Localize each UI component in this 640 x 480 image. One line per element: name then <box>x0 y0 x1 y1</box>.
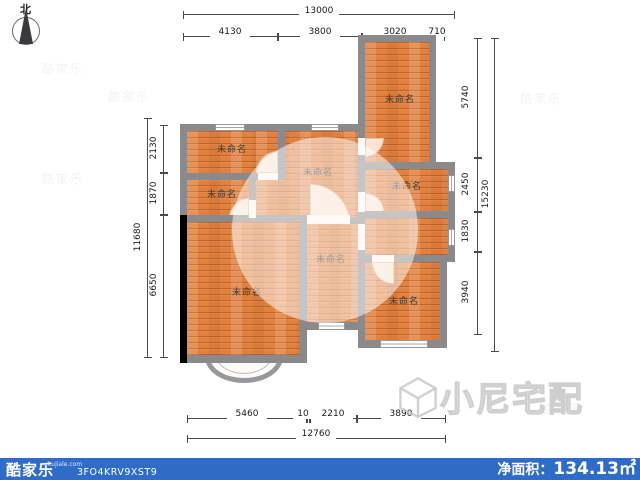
watermark-disc <box>232 137 418 323</box>
faint-watermark: 酷家乐 <box>108 88 150 105</box>
dim-label: 1870 <box>149 171 159 215</box>
plan-code: 3FO4KRV9XST9 <box>77 467 157 478</box>
faint-watermark: 酷家乐 <box>520 90 562 107</box>
dim-label-right-overall: 15230 <box>481 172 491 216</box>
faint-watermark: 酷家乐 <box>42 60 84 77</box>
dimension-line <box>163 125 164 173</box>
faint-watermark: 酷家乐 <box>42 170 84 187</box>
watermark-cube-icon <box>396 374 440 420</box>
window <box>215 124 245 131</box>
window <box>311 124 339 131</box>
window <box>448 175 455 192</box>
dim-label: 2210 <box>313 409 353 419</box>
room-label: 未命名 <box>378 92 422 105</box>
dim-label: 3940 <box>461 270 471 314</box>
brand-logo: 酷家乐 <box>6 459 54 480</box>
dim-label: 3800 <box>300 27 340 37</box>
dim-label: 4130 <box>210 27 250 37</box>
dim-label: 5740 <box>461 75 471 119</box>
watermark-brand-text: 小尼宅配 <box>440 372 584 421</box>
dim-label-bottom-overall: 12760 <box>296 429 336 439</box>
window <box>380 340 428 348</box>
dim-label: 6650 <box>149 263 159 307</box>
dim-label: 10 <box>293 409 313 419</box>
dimension-line <box>494 38 495 352</box>
dim-label: 1830 <box>461 209 471 253</box>
dimension-line <box>477 252 478 335</box>
dim-label: 2450 <box>461 162 471 206</box>
wall <box>440 255 447 348</box>
dimension-line <box>163 215 164 358</box>
room-label: 未命名 <box>210 142 254 155</box>
dimension-line <box>477 38 478 158</box>
dim-label-left-overall: 11680 <box>133 215 143 259</box>
selected-wall <box>180 215 187 363</box>
wall <box>358 35 365 138</box>
dimension-line <box>477 212 478 252</box>
window <box>318 322 345 330</box>
net-area-value: 134.13㎡ <box>553 458 636 480</box>
wall <box>358 35 436 42</box>
dimension-line <box>147 118 148 358</box>
window <box>448 229 455 246</box>
footer-bar: 酷家乐 kujiale.com 3FO4KRV9XST9 净面积： 134.13… <box>0 458 640 480</box>
dim-label: 2130 <box>149 126 159 170</box>
wall <box>429 35 436 169</box>
dim-label-top-overall: 13000 <box>299 6 339 16</box>
wall <box>180 355 307 363</box>
dimension-line <box>477 158 478 212</box>
dim-label: 5460 <box>227 409 267 419</box>
dimension-line <box>163 173 164 215</box>
compass-needle-icon <box>19 8 33 44</box>
wall <box>180 124 187 215</box>
net-area: 净面积： 134.13㎡ <box>497 458 636 480</box>
floorplan-canvas: 北 酷家乐 酷家乐 酷家乐 酷家乐 酷家乐 <box>0 0 640 480</box>
watermark-logo: 小尼宅配 <box>396 372 584 421</box>
net-area-label: 净面积： <box>497 459 553 480</box>
